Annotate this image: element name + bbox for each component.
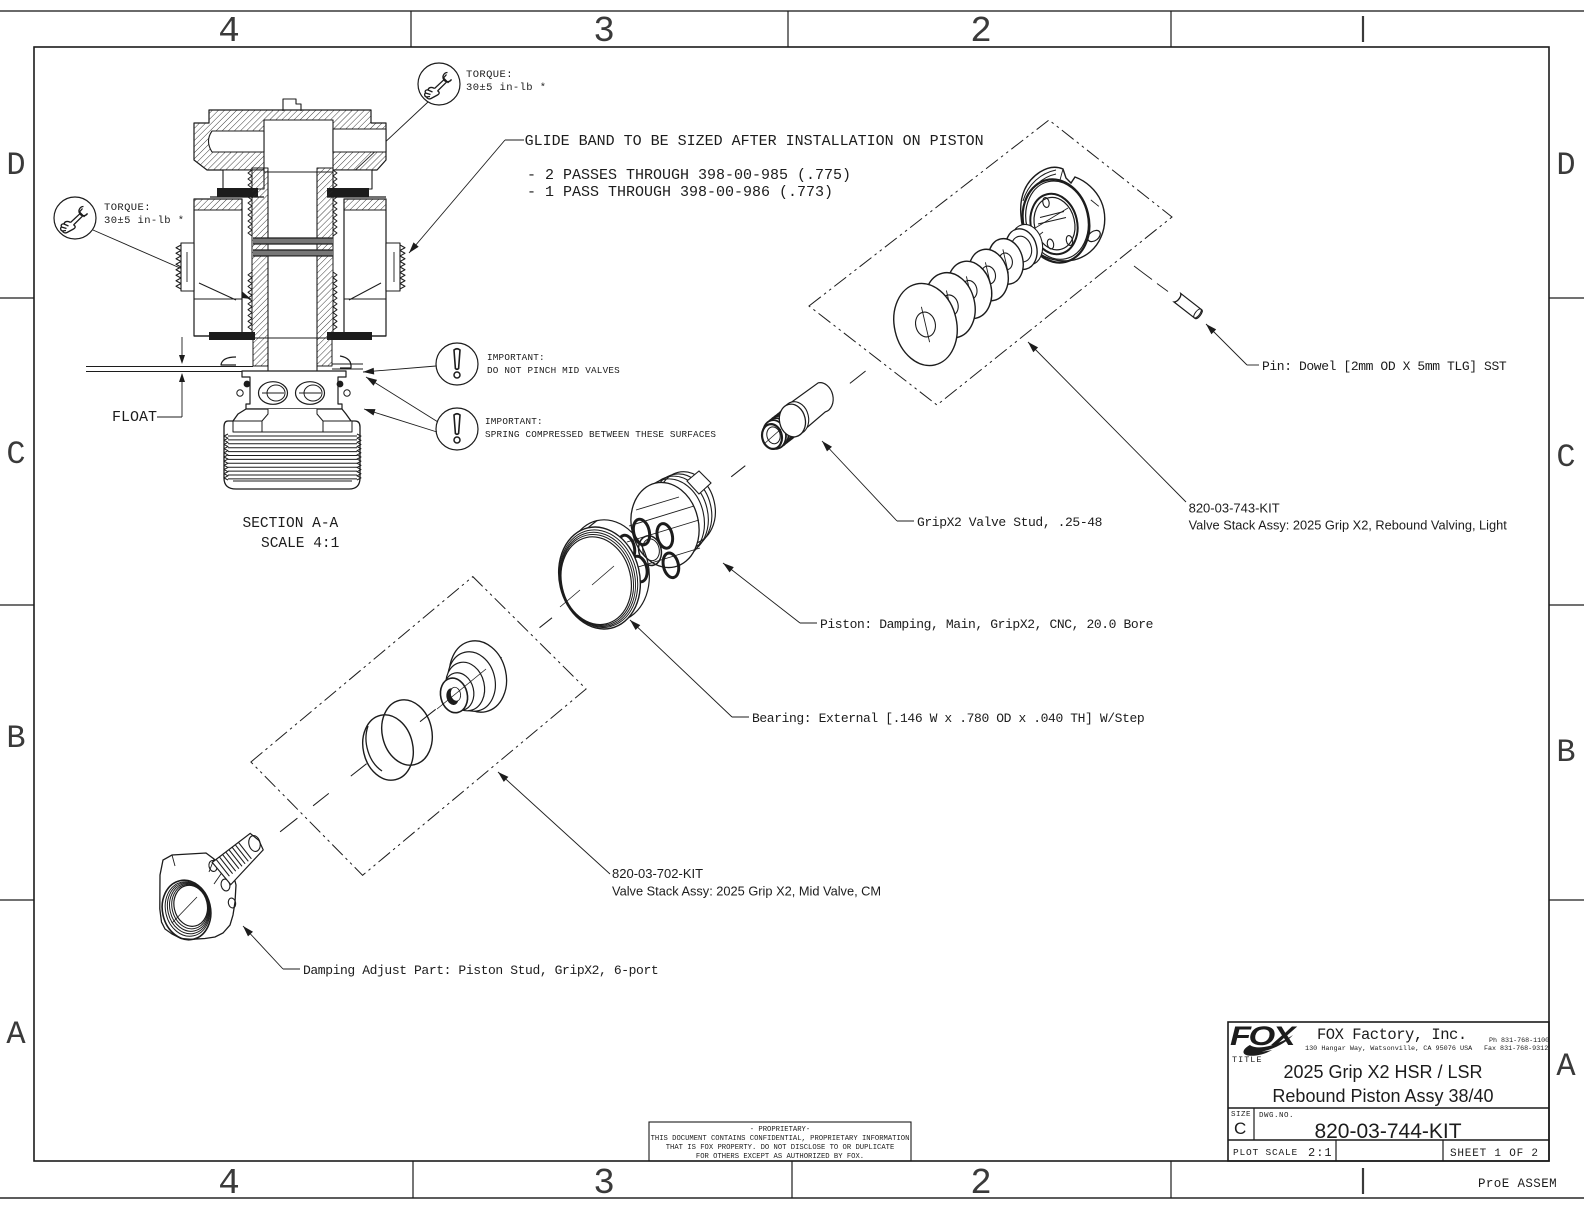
svg-text:GLIDE BAND TO BE SIZED AFTER I: GLIDE BAND TO BE SIZED AFTER INSTALLATIO… xyxy=(525,133,984,150)
svg-text:820-03-702-KIT: 820-03-702-KIT xyxy=(612,866,703,881)
svg-text:820-03-743-KIT: 820-03-743-KIT xyxy=(1189,501,1280,516)
svg-text:A: A xyxy=(6,1016,26,1053)
svg-text:- 2 PASSES THROUGH 398-00-985: - 2 PASSES THROUGH 398-00-985 (.775) xyxy=(527,167,851,184)
svg-text:2: 2 xyxy=(970,11,992,52)
svg-text:A: A xyxy=(1556,1048,1576,1085)
svg-text:3: 3 xyxy=(593,11,615,52)
svg-text:B: B xyxy=(6,720,25,757)
svg-text:Bearing: External [.146 W x .7: Bearing: External [.146 W x .780 OD x .0… xyxy=(752,711,1144,726)
svg-text:2: 2 xyxy=(970,1163,992,1204)
svg-text:THAT IS FOX PROPERTY. DO NOT: THAT IS FOX PROPERTY. DO NOT DISCLOSE TO… xyxy=(666,1144,895,1152)
svg-text:2025 Grip X2 HSR / LSR: 2025 Grip X2 HSR / LSR xyxy=(1283,1062,1482,1082)
svg-text:- 1 PASS THROUGH 398-00-986 (.: - 1 PASS THROUGH 398-00-986 (.773) xyxy=(527,184,833,201)
svg-text:C: C xyxy=(1234,1119,1246,1138)
svg-text:SCALE 4:1: SCALE 4:1 xyxy=(261,536,339,552)
svg-text:SPRING COMPRESSED BETWEEN THES: SPRING COMPRESSED BETWEEN THESE SURFACES xyxy=(485,429,716,440)
svg-text:2:1: 2:1 xyxy=(1308,1146,1333,1160)
svg-text:TITLE: TITLE xyxy=(1232,1055,1263,1065)
svg-text:FLOAT: FLOAT xyxy=(112,409,157,426)
svg-text:Pin: Dowel [2mm OD X 5mm TLG]: Pin: Dowel [2mm OD X 5mm TLG] SST xyxy=(1262,359,1507,374)
svg-text:Valve Stack Assy: 2025 Grip X2: Valve Stack Assy: 2025 Grip X2, Rebound … xyxy=(1189,518,1508,533)
svg-text:IMPORTANT:: IMPORTANT: xyxy=(487,352,545,363)
svg-text:- PROPRIETARY-: - PROPRIETARY- xyxy=(750,1126,810,1134)
svg-text:DO NOT PINCH MID VALVES: DO NOT PINCH MID VALVES xyxy=(487,365,620,376)
svg-text:FOX: FOX xyxy=(1230,1021,1298,1051)
svg-text:DWG.NO.: DWG.NO. xyxy=(1259,1112,1294,1120)
svg-text:D: D xyxy=(1556,147,1575,184)
svg-text:820-03-744-KIT: 820-03-744-KIT xyxy=(1314,1120,1461,1143)
svg-text:Fax 831-768-9312: Fax 831-768-9312 xyxy=(1484,1045,1548,1053)
svg-text:ProE ASSEM: ProE ASSEM xyxy=(1478,1177,1557,1191)
svg-text:SHEET 1 OF 2: SHEET 1 OF 2 xyxy=(1450,1148,1539,1160)
svg-text:B: B xyxy=(1556,734,1575,771)
svg-text:Rebound Piston Assy 38/40: Rebound Piston Assy 38/40 xyxy=(1272,1086,1493,1106)
svg-text:GripX2 Valve Stud, .25-48: GripX2 Valve Stud, .25-48 xyxy=(917,515,1102,530)
svg-text:3: 3 xyxy=(593,1163,615,1204)
svg-text:130 Hangar Way, Watsonville, C: 130 Hangar Way, Watsonville, CA 95076 US… xyxy=(1305,1045,1473,1053)
svg-text:30±5 in-lb *: 30±5 in-lb * xyxy=(466,82,546,94)
svg-text:Valve Stack Assy: 2025 Grip X2: Valve Stack Assy: 2025 Grip X2, Mid Valv… xyxy=(612,884,881,899)
svg-text:4: 4 xyxy=(218,1163,240,1204)
svg-text:IMPORTANT:: IMPORTANT: xyxy=(485,416,543,427)
svg-text:Damping Adjust Part: Piston St: Damping Adjust Part: Piston Stud, GripX2… xyxy=(303,963,658,978)
svg-text:TORQUE:: TORQUE: xyxy=(466,69,513,81)
svg-text:FOX Factory, Inc.: FOX Factory, Inc. xyxy=(1317,1026,1467,1044)
svg-text:THIS DOCUMENT CONTAINS CONFIDE: THIS DOCUMENT CONTAINS CONFIDENTIAL, PRO… xyxy=(651,1135,910,1143)
svg-text:SECTION A-A: SECTION A-A xyxy=(243,516,339,532)
svg-text:C: C xyxy=(1556,439,1575,476)
svg-text:30±5 in-lb *: 30±5 in-lb * xyxy=(104,215,184,227)
svg-text:D: D xyxy=(6,147,25,184)
svg-text:SIZE: SIZE xyxy=(1231,1111,1251,1119)
svg-text:Ph 831-768-1100: Ph 831-768-1100 xyxy=(1489,1037,1549,1045)
svg-text:FOR OTHERS EXCEPT AS AUTHORIZE: FOR OTHERS EXCEPT AS AUTHORIZED BY FOX. xyxy=(696,1153,864,1161)
svg-text:C: C xyxy=(6,436,25,473)
svg-text:4: 4 xyxy=(218,11,240,52)
svg-text:PLOT SCALE: PLOT SCALE xyxy=(1233,1147,1298,1158)
svg-text:Piston: Damping, Main, GripX2,: Piston: Damping, Main, GripX2, CNC, 20.0… xyxy=(820,617,1153,632)
svg-text:TORQUE:: TORQUE: xyxy=(104,202,151,214)
